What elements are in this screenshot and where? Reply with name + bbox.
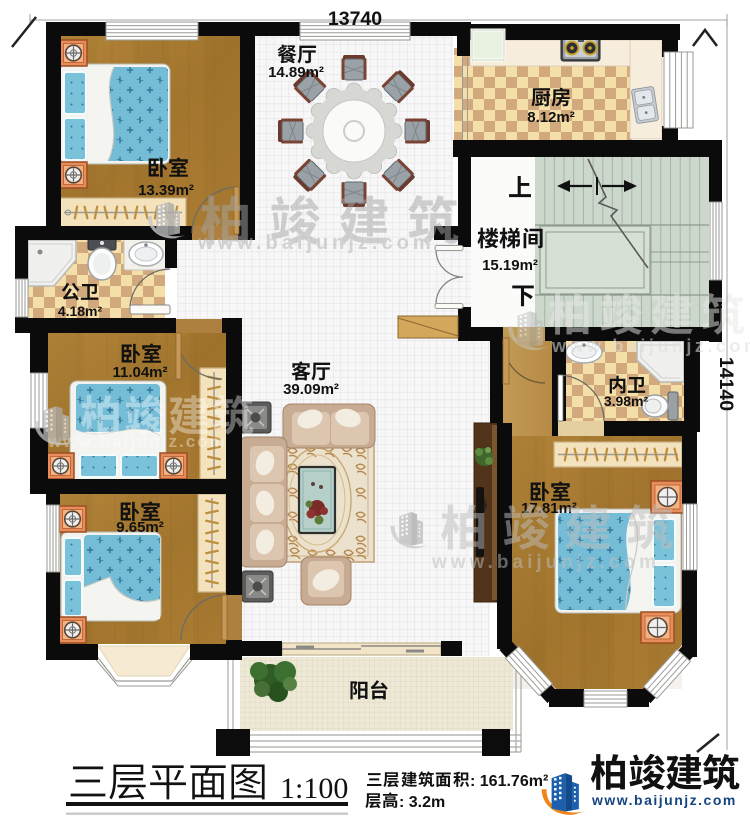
svg-text:www.baijunjz.com: www.baijunjz.com: [591, 792, 737, 808]
svg-text:www.baijunjz.com: www.baijunjz.com: [431, 552, 660, 573]
svg-text:4.18m²: 4.18m²: [58, 303, 103, 319]
svg-text:13740: 13740: [328, 8, 382, 30]
svg-text:www.baijunjz.com: www.baijunjz.com: [551, 336, 750, 356]
svg-text:9.65m²: 9.65m²: [116, 519, 164, 536]
svg-text:39.09m²: 39.09m²: [283, 381, 339, 398]
svg-text:: 161.76m²: : 161.76m²: [470, 773, 548, 790]
svg-text:www.baijunjz.com: www.baijunjz.com: [47, 432, 227, 451]
svg-text:www.baijunjz.com: www.baijunjz.com: [197, 232, 435, 254]
svg-text:14140: 14140: [715, 357, 737, 411]
svg-text:1:100: 1:100: [280, 772, 348, 805]
svg-text:15.19m²: 15.19m²: [482, 257, 538, 274]
svg-text:8.12m²: 8.12m²: [527, 109, 575, 126]
svg-text:3.98m²: 3.98m²: [604, 393, 649, 409]
svg-text:: 3.2m: : 3.2m: [399, 794, 445, 811]
svg-text:13.39m²: 13.39m²: [138, 182, 194, 199]
svg-text:11.04m²: 11.04m²: [112, 364, 167, 381]
svg-text:14.89m²: 14.89m²: [268, 64, 324, 81]
